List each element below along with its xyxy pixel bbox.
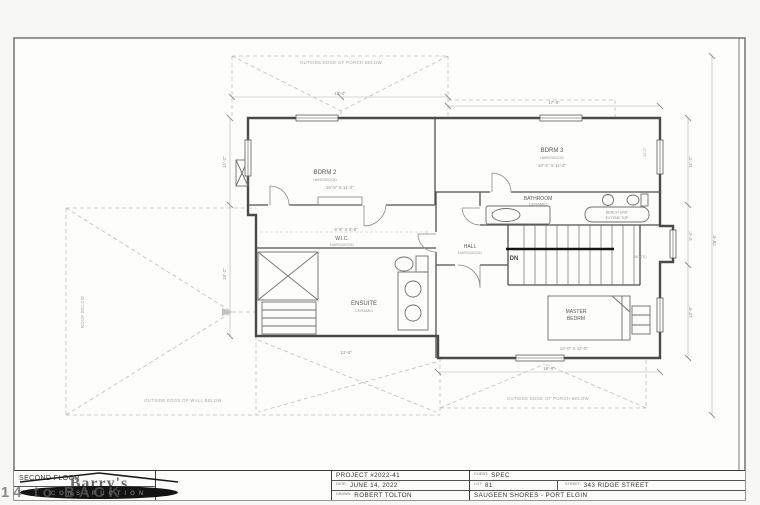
- builder-logo-cell: Barry's CONSTRUCTION: [156, 471, 332, 500]
- bathroom-floor-label: CERAMIC: [529, 202, 548, 207]
- lot-label: LOT:: [474, 481, 482, 486]
- city-value: SAUGEEN SHORES - PORT ELGIN: [474, 492, 587, 499]
- wall-note-bottom-left: OUTSIDE EDGE OF WALL BELOW: [144, 398, 222, 403]
- wic-floor-label: HARDWOOD: [330, 242, 354, 247]
- stairs-dn-label: DN: [510, 256, 519, 262]
- bdrm3-label: BDRM 3: [541, 148, 564, 154]
- ensuite-label: ENSUITE: [351, 301, 377, 307]
- dim-top: 18'-0": [334, 91, 346, 96]
- date-value: JUNE 14, 2022: [350, 482, 398, 489]
- dim-right-lower: 12'-0": [688, 306, 693, 318]
- capsule-note-line2: EXTEND TOP: [606, 216, 629, 220]
- dim-right-mid: 5'-4": [688, 231, 693, 240]
- porch-note-bottom-right: OUTSIDE EDGE OF PORCH BELOW: [507, 396, 589, 401]
- roof-below-note: ROOF BELOW: [80, 296, 85, 328]
- dim-bottom-ensuite: 13'-0": [340, 350, 352, 355]
- dim-right-overall: 28'-6": [712, 234, 717, 246]
- drawn-by-value: ROBERT TOLTON: [354, 492, 412, 499]
- floorplan-scan-page: BDRM 2 HARDWOOD 16'-8" X 11'-2" BDRM 3 H…: [0, 0, 760, 505]
- master-label-1: MASTER: [566, 309, 587, 315]
- floorplan-drawing: BDRM 2 HARDWOOD 16'-8" X 11'-2" BDRM 3 H…: [0, 0, 760, 505]
- bdrm3-floor-label: HARDWOOD: [540, 155, 564, 160]
- note-callout: (NOTE): [633, 254, 647, 259]
- bdrm3-dim: 10'-4" X 11'-2": [538, 163, 566, 168]
- client-label: CLIENT:: [474, 471, 488, 476]
- dim-top-right: 17'-8": [548, 100, 560, 105]
- dim-right-upper: 11'-2": [688, 156, 693, 168]
- project-number: PROJECT #2022-41: [336, 472, 400, 479]
- site-info-cell: CLIENT: SPEC LOT: 81 STREET: 343 RIDGE S…: [470, 471, 745, 500]
- watermark-text: B14 to BACK: [0, 484, 123, 501]
- dim-left-lower: 10'-2": [222, 268, 227, 280]
- title-block: SECOND FLOOR 961 SQ. FT. (89.3 SQ.M.) Ba…: [14, 470, 745, 500]
- street-label: STREET:: [565, 481, 581, 486]
- bdrm2-label: BDRM 2: [314, 170, 337, 176]
- drawing-frame: [14, 38, 745, 500]
- ensuite-floor-label: CERAMIC: [355, 308, 374, 313]
- dim-bottom-master: 18'-6": [543, 366, 555, 371]
- client-value: SPEC: [491, 472, 510, 479]
- bdrm2-dim: 16'-8" X 11'-2": [326, 185, 354, 190]
- wic-dim: 9'-8" X 3'-8": [334, 227, 358, 232]
- bdrm2-floor-label: HARDWOOD: [313, 177, 337, 182]
- project-info-cell: PROJECT #2022-41 DATE: JUNE 14, 2022 DRA…: [332, 471, 470, 500]
- master-dim: 13'-0" X 12'-0": [560, 346, 589, 351]
- hall-floor-label: HARDWOOD: [458, 250, 482, 255]
- master-label-2: BEDRM: [567, 316, 585, 322]
- lot-value: 81: [485, 482, 493, 489]
- capsule-note-line1: BENCH UNIT: [606, 211, 629, 215]
- dim-left-upper: 11'-2": [222, 156, 227, 168]
- street-value: 343 RIDGE STREET: [584, 482, 649, 489]
- dim-bdrm3-side: 11'-2": [642, 146, 647, 156]
- drawn-by-label: DRAWN:: [336, 491, 351, 496]
- porch-note-top: OUTSIDE EDGE OF PORCH BELOW: [300, 60, 382, 65]
- date-label: DATE:: [336, 481, 347, 486]
